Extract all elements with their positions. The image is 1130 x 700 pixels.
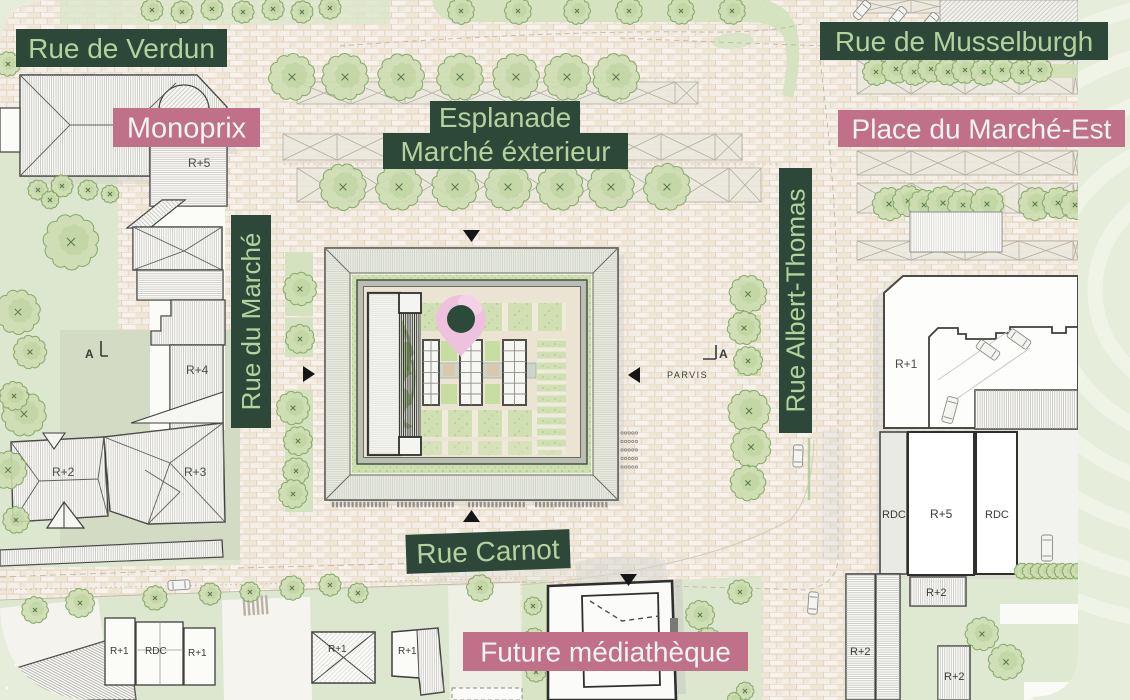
svg-text:R+1: R+1 bbox=[398, 646, 417, 657]
svg-text:RDC: RDC bbox=[145, 646, 167, 657]
svg-text:Rue Carnot: Rue Carnot bbox=[416, 534, 560, 570]
svg-text:R+5: R+5 bbox=[930, 507, 953, 521]
svg-text:R+1: R+1 bbox=[328, 644, 347, 655]
svg-text:R+1: R+1 bbox=[895, 357, 918, 371]
svg-text:R+2: R+2 bbox=[850, 646, 871, 658]
svg-text:PARVIS: PARVIS bbox=[667, 370, 708, 380]
svg-text:RDC: RDC bbox=[985, 509, 1009, 521]
svg-text:R+2: R+2 bbox=[944, 671, 965, 683]
svg-text:Place du Marché-Est: Place du Marché-Est bbox=[852, 113, 1112, 144]
svg-text:R+4: R+4 bbox=[186, 363, 209, 377]
svg-text:R+1: R+1 bbox=[110, 646, 129, 657]
svg-text:R+2: R+2 bbox=[52, 465, 75, 479]
svg-text:RDC: RDC bbox=[882, 509, 906, 521]
svg-text:Rue de Musselburgh: Rue de Musselburgh bbox=[835, 26, 1093, 57]
svg-text:Esplanade: Esplanade bbox=[439, 102, 571, 133]
svg-text:Rue du Marché: Rue du Marché bbox=[236, 233, 266, 411]
svg-text:Rue Albert-Thomas: Rue Albert-Thomas bbox=[781, 189, 811, 413]
svg-text:Monoprix: Monoprix bbox=[127, 113, 247, 145]
svg-text:R+5: R+5 bbox=[188, 156, 211, 170]
svg-text:R+2: R+2 bbox=[926, 587, 947, 599]
svg-text:Rue de Verdun: Rue de Verdun bbox=[28, 33, 215, 64]
svg-text:A: A bbox=[85, 347, 94, 361]
svg-text:R+3: R+3 bbox=[184, 465, 207, 479]
svg-text:Future médiathèque: Future médiathèque bbox=[480, 636, 731, 667]
svg-text:A: A bbox=[719, 347, 728, 361]
svg-text:R+1: R+1 bbox=[188, 648, 207, 659]
svg-text:Marché éxterieur: Marché éxterieur bbox=[400, 136, 610, 167]
